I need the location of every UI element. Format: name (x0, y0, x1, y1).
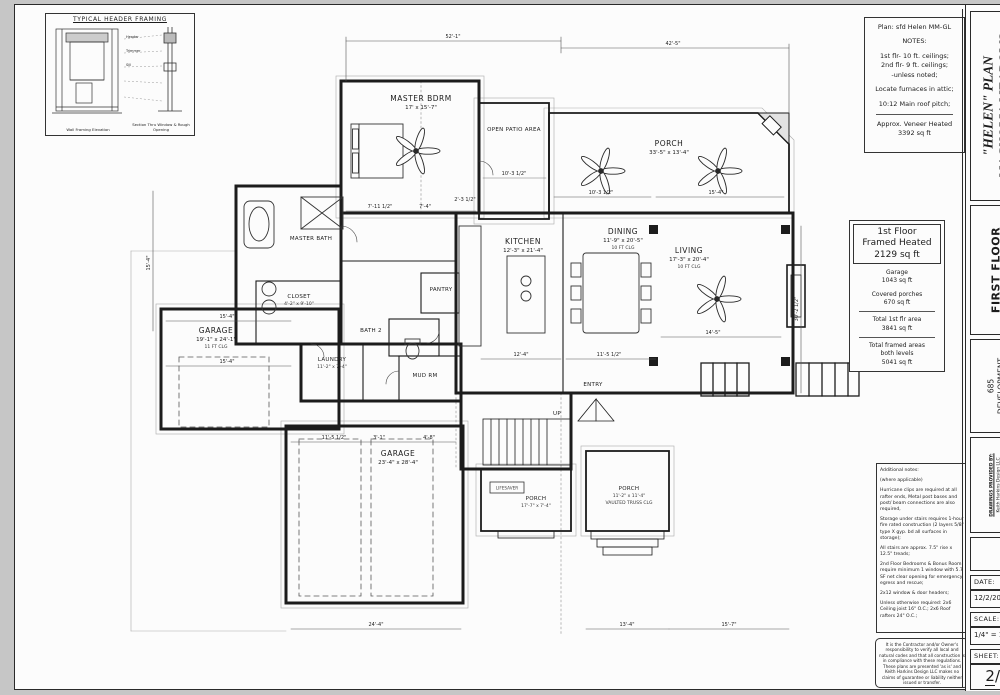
room-dim: 23'-4" x 28'-4" (378, 460, 418, 466)
dim-text: 42'-5" (665, 41, 680, 47)
svg-text:Trimmer: Trimmer (125, 49, 141, 53)
plan-title-line2: MAGNOLIA MEADOWS (996, 34, 1000, 178)
veneer-value: 3392 sq ft (868, 129, 961, 138)
note-line: 1st flr- 10 ft. ceilings; (868, 52, 961, 61)
room-label-master: MASTER BDRM (390, 94, 451, 103)
total-framed-label2: both levels (853, 350, 941, 358)
client-line1: 685 (986, 358, 996, 414)
room-sub: VAULTED TRUSS CLG (606, 500, 653, 506)
room-label-garage-left: GARAGE (199, 326, 233, 335)
addl-note: Unless otherwise required: 2x6 Ceiling j… (880, 601, 965, 620)
disclaimer-box: It is the Contractor and/or Owner's resp… (875, 638, 969, 688)
dim-text: 7'-11 1/2" (368, 204, 393, 210)
ceiling-fan-icon (395, 127, 742, 323)
veneer-note: Approx. Veneer Heated (868, 120, 961, 129)
client-line2: DEVELOPMENT (996, 358, 1000, 414)
notes-title: NOTES: (868, 37, 961, 46)
room-label-entry: ENTRY (583, 382, 603, 388)
plan-title-line1: "HELEN" PLAN (980, 34, 996, 178)
room-label-patio: OPEN PATIO AREA (487, 127, 541, 133)
room-label-garage-bottom: GARAGE (381, 449, 415, 458)
notes-box: Plan: sfd Helen MM-GL NOTES: 1st flr- 10… (864, 17, 965, 153)
dim-text: 13'-4" (619, 622, 634, 628)
designer-name: Keith Harkins Design LLC (996, 453, 1000, 516)
dim-text: 15'-4" (219, 314, 234, 320)
room-label-dining: DINING (608, 227, 638, 236)
room-label-kitchen: KITCHEN (505, 237, 541, 246)
area-head-line: Framed Heated (855, 238, 939, 249)
addl-note: 2nd Floor Bedrooms & Bonus Room require … (880, 562, 965, 587)
stairs-up-label: UP (553, 411, 561, 417)
stairs (483, 419, 571, 465)
provided-by-label: DRAWINGS PROVIDED BY: (989, 453, 996, 516)
date-label: DATE: (970, 575, 1000, 590)
room-label-laundry: LAUNDRY (318, 357, 347, 363)
total-framed-value: 5041 sq ft (853, 359, 941, 367)
area-head-line: 1st Floor (855, 227, 939, 238)
dim-text: 10'-3 1/2" (589, 190, 614, 196)
designer-cell: DRAWINGS PROVIDED BY: Keith Harkins Desi… (970, 437, 1000, 533)
floor-cell: FIRST FLOOR (970, 205, 1000, 335)
dim-text: 24'-4" (368, 622, 383, 628)
dim-text: 15'-4" (146, 255, 152, 270)
designer-credit: DRAWINGS PROVIDED BY: Keith Harkins Desi… (989, 453, 1000, 516)
room-label-porch-top: PORCH (655, 139, 684, 148)
total-framed-label: Total framed areas (853, 342, 941, 350)
room-label-porch-br: PORCH (619, 486, 640, 492)
area-summary-box: 1st Floor Framed Heated 2129 sq ft Garag… (849, 220, 945, 372)
entry-doors (578, 399, 614, 421)
scale-value: 1/4" = 1 (970, 627, 1000, 645)
note-line: -unless noted; (868, 71, 961, 80)
note-line: 10:12 Main roof pitch; (868, 100, 961, 109)
bathtub (244, 201, 274, 248)
addl-note: 2x12 window & door headers; (880, 591, 965, 597)
room-dim: 17'-7" x 7'-4" (521, 503, 551, 509)
title-block: "HELEN" PLAN MAGNOLIA MEADOWS FIRST FLOO… (965, 5, 1000, 691)
svg-text:Header: Header (126, 35, 139, 39)
plan-id-line: Plan: sfd Helen MM-GL (868, 23, 961, 32)
corner-fireplace (758, 113, 789, 144)
dim-text: 11'-5 1/2" (597, 352, 622, 358)
dim-text: 10'-3 1/2" (502, 171, 527, 177)
titleblock-divider (962, 9, 963, 687)
area-head-value: 2129 sq ft (855, 250, 939, 261)
total-1st-value: 3841 sq ft (853, 325, 941, 333)
addl-note: Storage under stairs requires 1-hour fir… (880, 517, 965, 542)
room-label-closet: CLOSET (287, 294, 311, 300)
dim-text: 7'-4" (419, 204, 431, 210)
total-1st-label: Total 1st flr area (853, 316, 941, 324)
bay-windows (701, 363, 859, 396)
room-label-master-bath: MASTER BATH (290, 236, 332, 242)
shower (301, 197, 343, 229)
sheet-label: SHEET: (970, 649, 1000, 664)
drawing-sheet: 52'-1" 42'-5" 15'-4" 30'-2 1/2" 24'-4" 1… (14, 4, 1000, 690)
dim-text: 30'-2 1/2" (794, 297, 800, 322)
addl-title: Additional notes: (880, 468, 965, 474)
room-dim: 17' x 15'-7" (405, 105, 437, 111)
blueprint-page: { "sheet": { "detail_box": { "title": "T… (0, 0, 1000, 695)
detail-caption-right: Section Thru Window & Rough Opening (130, 122, 192, 132)
additional-notes-box: Additional notes: (where applicable) Hur… (876, 463, 969, 633)
sheet-number-total: /4 (995, 667, 1000, 685)
porch-area-value: 670 sq ft (853, 299, 941, 307)
room-dim: 4'-2" x 9'-10" (284, 301, 314, 307)
svg-text:Sill: Sill (126, 63, 131, 67)
note-line: Locate furnaces in attic; (868, 85, 961, 94)
garage-area-value: 1043 sq ft (853, 277, 941, 285)
note-line: 2nd flr- 9 ft. ceilings; (868, 61, 961, 70)
floor-label: FIRST FLOOR (990, 227, 1000, 313)
scale-label: SCALE: (970, 612, 1000, 627)
room-sub: 11 FT CLG (205, 344, 228, 350)
room-sub: 10 FT CLG (612, 245, 635, 251)
date-value: 12/2/202 (970, 590, 1000, 608)
room-label-mudrm: MUD RM (412, 373, 437, 379)
dim-text: 12'-4" (513, 352, 528, 358)
dim-text: 52'-1" (445, 34, 460, 40)
client-cell: 685 DEVELOPMENT (970, 339, 1000, 433)
garage-area-label: Garage (853, 269, 941, 277)
porch-walls (479, 103, 789, 531)
dimension-lines (153, 37, 801, 629)
framing-sketch: Header Trimmer Sill (46, 23, 194, 121)
dim-text: 14'-5" (705, 330, 720, 336)
dim-text: 4'-8" (423, 435, 435, 441)
room-dim: 19'-1" x 24'-1" (196, 337, 236, 343)
plan-title: "HELEN" PLAN MAGNOLIA MEADOWS (980, 34, 1000, 178)
addl-note: All stairs are approx. 7.5" rise x 12.5"… (880, 546, 965, 558)
room-sub: 10 FT CLG (678, 264, 701, 270)
framed-heated-box: 1st Floor Framed Heated 2129 sq ft (853, 224, 941, 264)
dim-text: 2'-3 1/2" (454, 197, 475, 203)
storm-shelter-label: LIFESAVER (496, 486, 518, 491)
dim-text: 11'-5 1/2" (322, 435, 347, 441)
room-dim: 11'-2" x 11'-4" (613, 493, 646, 499)
room-dim: 11'-9" x 20'-5" (603, 238, 643, 244)
dim-text: 15'-4" (219, 359, 234, 365)
garage-bays (179, 357, 433, 596)
detail-title: TYPICAL HEADER FRAMING (46, 14, 194, 23)
room-label-bath2: BATH 2 (360, 328, 382, 334)
room-label-porch-bl: PORCH (526, 496, 547, 502)
room-label-pantry: PANTRY (430, 287, 453, 293)
dining-table (571, 253, 651, 333)
porch-area-label: Covered porches (853, 291, 941, 299)
dimension-texts: 52'-1" 42'-5" 15'-4" 30'-2 1/2" 24'-4" 1… (146, 34, 800, 628)
room-dim: 11'-2" x 7'-4" (317, 364, 347, 370)
addl-note: Hurricane clips are required at all raft… (880, 488, 965, 513)
room-dim: 12'-3" x 21'-4" (503, 248, 543, 254)
room-label-living: LIVING (675, 246, 703, 255)
client-name: 685 DEVELOPMENT (986, 358, 1000, 414)
detail-caption-left: Wall Framing Elevation (52, 127, 124, 132)
room-dim: 17'-3" x 20'-4" (669, 257, 709, 263)
room-dim: 33'-5" x 13'-4" (649, 150, 689, 156)
sheet-number: 2/4 (970, 664, 1000, 690)
bed (351, 124, 403, 178)
dim-text: 15'-7" (721, 622, 736, 628)
sheet-number-current: 2 (985, 667, 995, 686)
extension-lines (421, 81, 561, 634)
addl-subtitle: (where applicable) (880, 478, 965, 484)
header-framing-detail: TYPICAL HEADER FRAMING (45, 13, 195, 136)
dim-text: 15'-4" (708, 190, 723, 196)
plan-title-cell: "HELEN" PLAN MAGNOLIA MEADOWS (970, 11, 1000, 201)
empty-cell (970, 537, 1000, 571)
dim-text: 3'-1" (373, 435, 385, 441)
